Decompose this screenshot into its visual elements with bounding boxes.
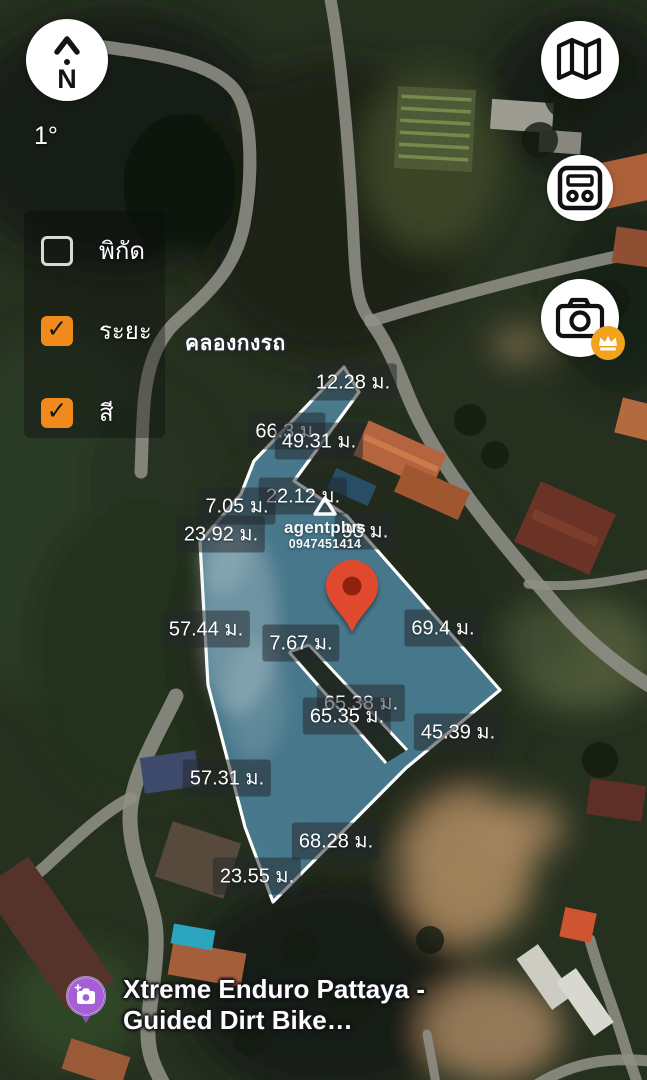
triangle-logo-icon (281, 495, 369, 517)
map-style-button[interactable] (541, 21, 619, 99)
checkmark-icon: ✓ (47, 399, 68, 424)
color-checkbox[interactable]: ✓ (41, 398, 73, 428)
watermark: agentplus 0947451414 (281, 495, 369, 551)
place-label: คลองกงรถ (185, 327, 286, 360)
panel-row-distance: ✓ ระยะ (41, 311, 152, 350)
layers-panel: พิกัด ✓ ระยะ ✓ สี (24, 211, 165, 438)
compass-bearing: 1° (34, 122, 58, 151)
poi-title-line1: Xtreme Enduro Pattaya - (123, 974, 425, 1005)
coordinates-label: พิกัด (99, 231, 145, 270)
photo-camera-pin-icon (62, 972, 110, 1026)
panel-row-color: ✓ สี (41, 393, 114, 432)
poi-title: Xtreme Enduro Pattaya - Guided Dirt Bike… (123, 974, 425, 1036)
premium-badge (591, 326, 625, 360)
poi[interactable]: Xtreme Enduro Pattaya - Guided Dirt Bike… (62, 972, 425, 1036)
crown-icon (597, 333, 619, 353)
compass-button[interactable]: N (26, 19, 108, 101)
svg-text:N: N (57, 64, 77, 94)
card-panel-icon (557, 165, 603, 211)
poi-title-line2: Guided Dirt Bike… (123, 1005, 425, 1036)
app-screen: 12.28 ม.66.3 ม.49.31 ม.22.12 ม.7.05 ม.23… (0, 0, 647, 1080)
panel-row-coordinates: พิกัด (41, 231, 145, 270)
map-icon (555, 37, 605, 83)
distance-label: ระยะ (99, 311, 152, 350)
watermark-phone: 0947451414 (281, 537, 369, 551)
card-panel-button[interactable] (547, 155, 613, 221)
coordinates-checkbox[interactable] (41, 236, 73, 266)
checkmark-icon: ✓ (47, 317, 68, 342)
compass-north-icon: N (26, 19, 108, 101)
watermark-brand: agentplus (281, 518, 369, 538)
screenshot-camera-button[interactable] (541, 279, 619, 357)
distance-checkbox[interactable]: ✓ (41, 316, 73, 346)
color-label: สี (99, 393, 114, 432)
